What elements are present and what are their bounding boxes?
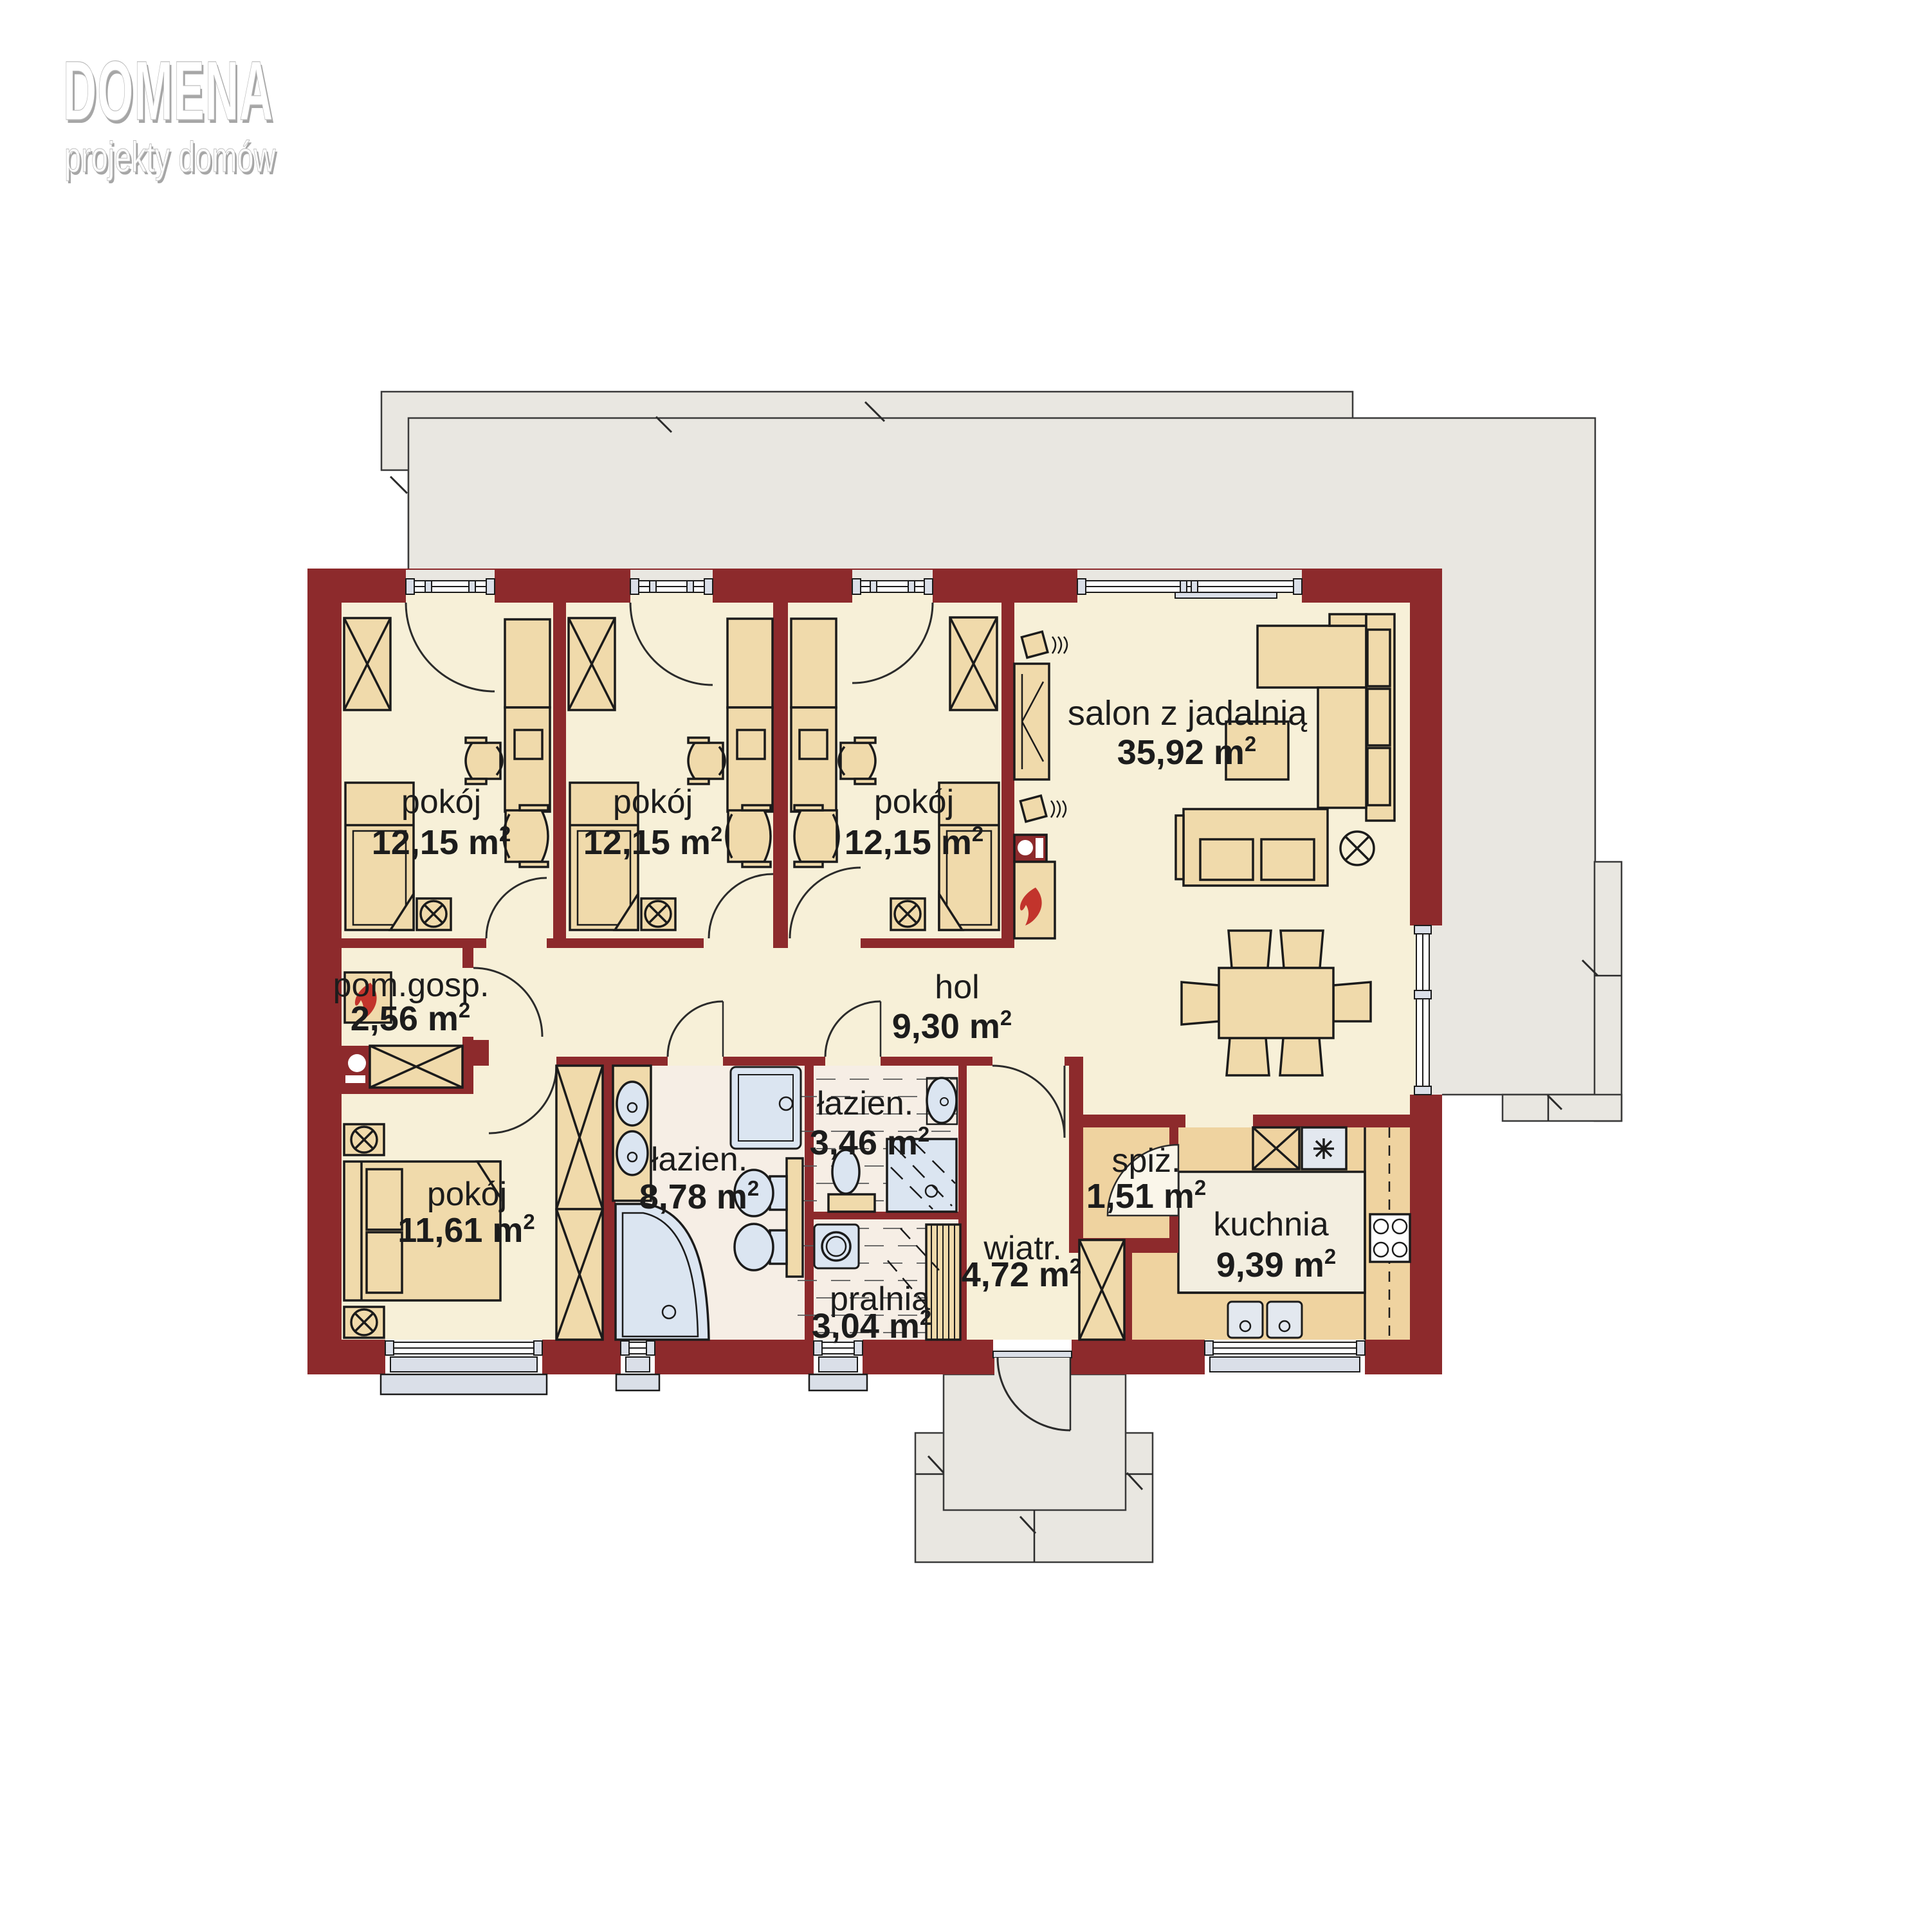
svg-text:pokój: pokój — [427, 1176, 507, 1213]
svg-text:9,39 m2: 9,39 m2 — [1216, 1244, 1336, 1284]
svg-text:2,56 m2: 2,56 m2 — [351, 998, 470, 1038]
svg-text:3,46 m2: 3,46 m2 — [810, 1122, 929, 1162]
svg-text:4,72 m2: 4,72 m2 — [962, 1254, 1081, 1294]
svg-text:pokój: pokój — [874, 783, 954, 821]
svg-text:12,15 m2: 12,15 m2 — [583, 822, 723, 862]
svg-text:11,61 m2: 11,61 m2 — [398, 1210, 535, 1250]
svg-text:projekty domów: projekty domów — [64, 134, 276, 181]
svg-text:pokój: pokój — [401, 783, 481, 821]
svg-text:salon z jadalnią: salon z jadalnią — [1068, 694, 1308, 733]
svg-text:1,51 m2: 1,51 m2 — [1086, 1176, 1206, 1216]
svg-text:pokój: pokój — [613, 783, 693, 821]
svg-text:spiż.: spiż. — [1112, 1142, 1181, 1180]
svg-text:DOMENA: DOMENA — [63, 44, 273, 138]
svg-text:12,15 m2: 12,15 m2 — [845, 822, 984, 862]
svg-text:3,04 m2: 3,04 m2 — [812, 1306, 931, 1345]
svg-text:8,78 m2: 8,78 m2 — [639, 1176, 759, 1216]
svg-text:kuchnia: kuchnia — [1213, 1206, 1328, 1243]
svg-text:łazien.: łazien. — [817, 1085, 913, 1122]
svg-text:35,92 m2: 35,92 m2 — [1117, 732, 1257, 772]
svg-text:9,30 m2: 9,30 m2 — [892, 1006, 1012, 1046]
svg-text:łazien.: łazien. — [651, 1141, 747, 1178]
svg-text:12,15 m2: 12,15 m2 — [372, 822, 511, 862]
svg-text:hol: hol — [935, 969, 979, 1006]
